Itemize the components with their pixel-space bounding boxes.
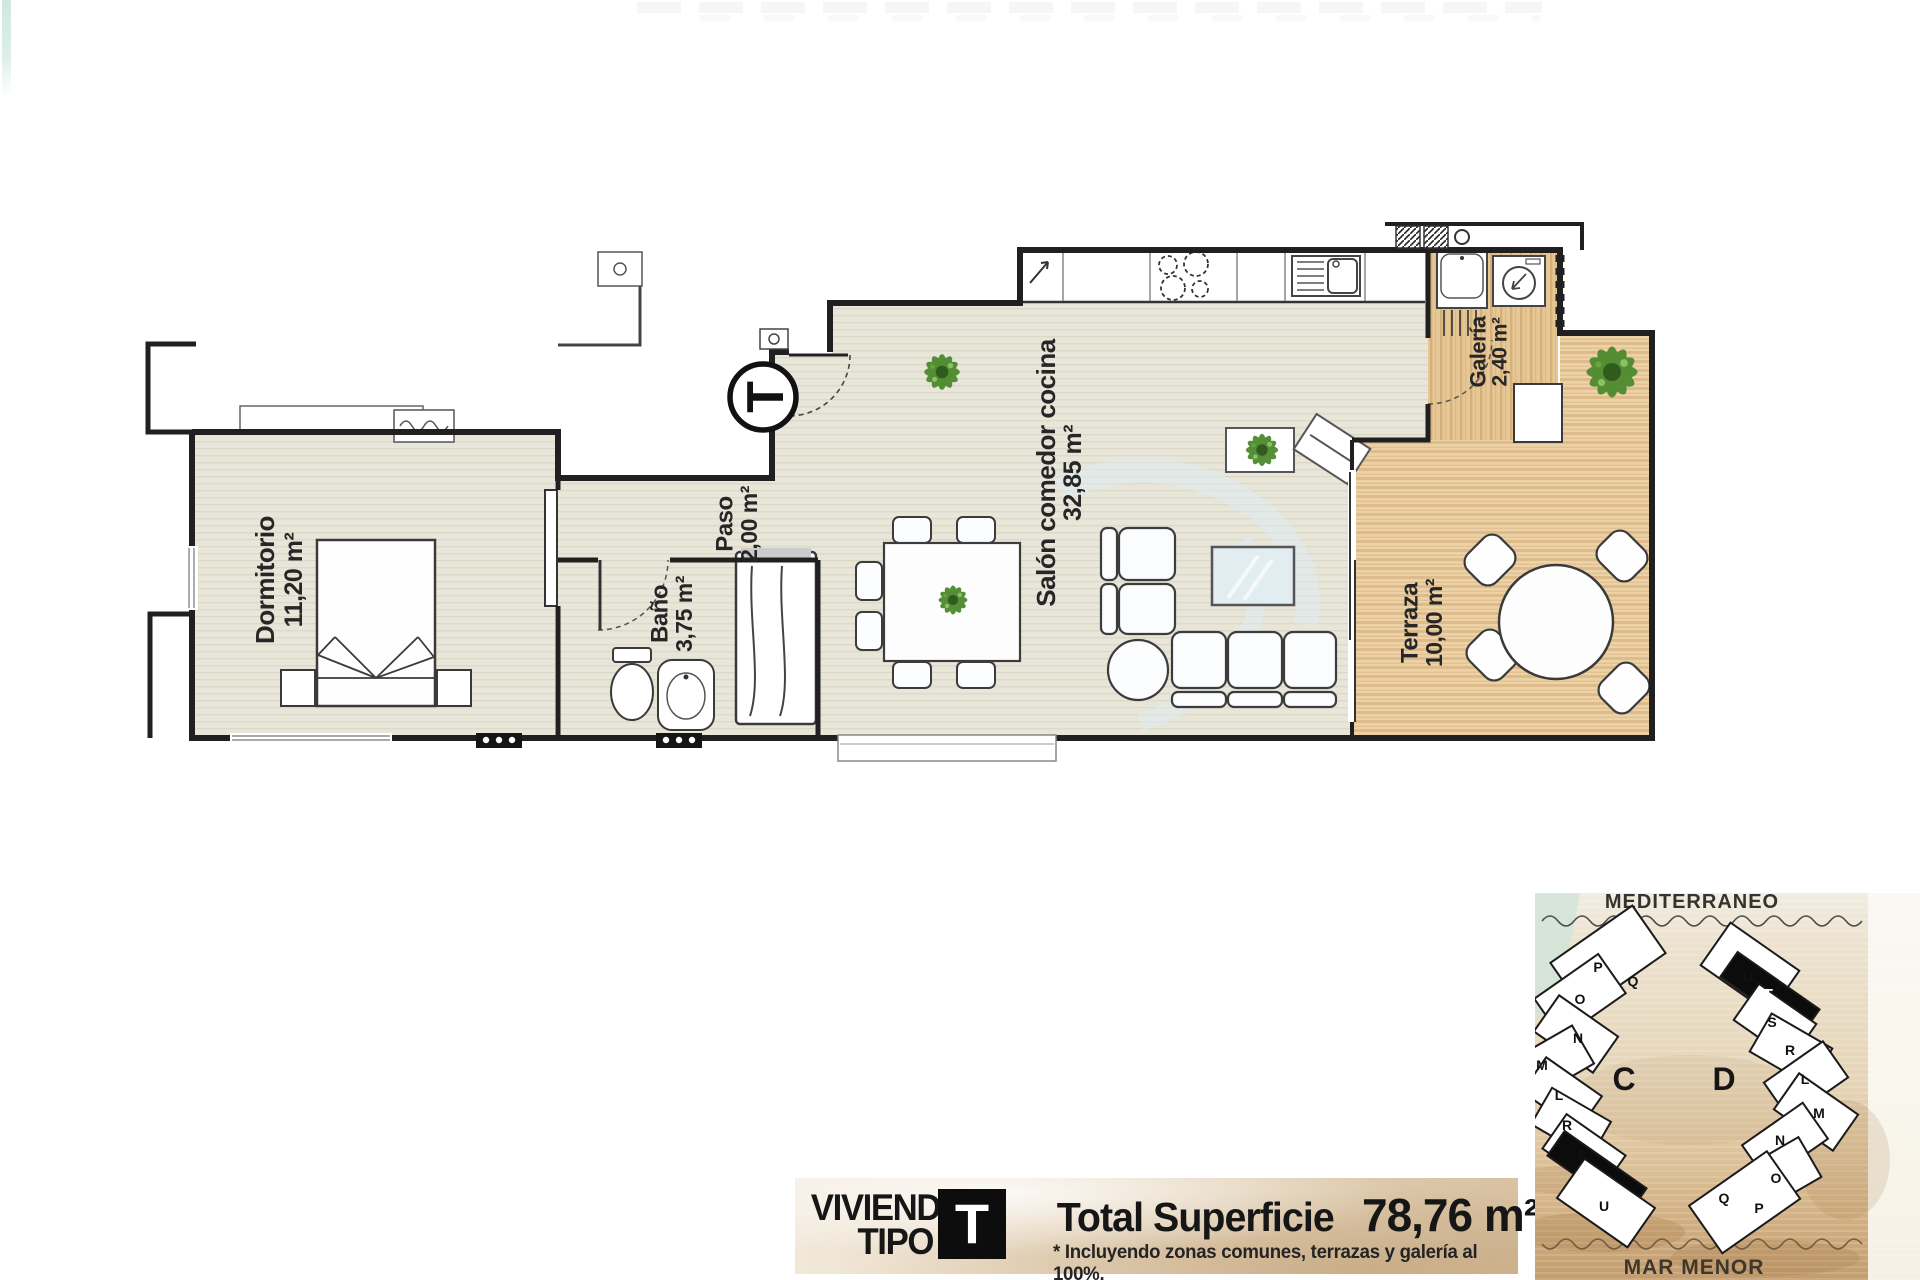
unit-letter: O xyxy=(1575,991,1586,1007)
type-letter-block: T xyxy=(938,1189,1006,1259)
unit-letter: R xyxy=(1785,1042,1795,1058)
summary-banner: VIVIENDA TIPO T Total Superficie 78,76 m… xyxy=(795,1178,1518,1274)
label-terraza: Terraza xyxy=(1397,582,1424,663)
sea-label-bottom: MAR MENOR xyxy=(1624,1256,1765,1279)
dining-chair xyxy=(957,662,995,688)
location-map: MEDITERRÁNEO P xyxy=(1535,893,1920,1280)
label-terraza-area: 10,00 m² xyxy=(1421,578,1447,667)
unit-letter: U xyxy=(1743,969,1753,985)
banner-title-line2: TIPO xyxy=(811,1225,933,1259)
unit-letter: L xyxy=(1555,1087,1564,1103)
sofa-seat xyxy=(1119,584,1175,634)
sofa-armrest xyxy=(1101,528,1117,580)
banner-title: VIVIENDA TIPO xyxy=(811,1191,933,1259)
sofa-seat xyxy=(1228,632,1282,688)
unit-letter: P xyxy=(1754,1200,1763,1216)
unit-letter: S xyxy=(1767,1014,1776,1030)
label-paso: Paso xyxy=(712,496,739,551)
side-table xyxy=(1108,640,1168,700)
unit-letter: Q xyxy=(1719,1190,1730,1206)
toilet-tank xyxy=(613,648,651,662)
unit-letter-highlighted: T xyxy=(1587,1171,1597,1188)
label-galeria-area: 2,40 m² xyxy=(1489,317,1512,386)
dining-chair xyxy=(957,517,995,543)
utility-box xyxy=(598,252,642,286)
kitchen-counter xyxy=(1020,250,1425,302)
floorplan-sheet: T Dormitorio 11,20 m² Paso 2,00 m² Baño … xyxy=(0,0,1920,1280)
sofa-front xyxy=(1284,692,1336,707)
label-bano-area: 3,75 m² xyxy=(671,575,697,652)
banner-footnote: * Incluyendo zonas comunes, terrazas y g… xyxy=(1053,1242,1509,1280)
unit-letter: M xyxy=(1536,1057,1548,1073)
dining-chair xyxy=(856,562,882,600)
stair-hatch xyxy=(1396,226,1420,248)
kitchen-sink xyxy=(1292,256,1360,296)
unit-letter: R xyxy=(1562,1117,1572,1133)
nightstand xyxy=(437,670,471,706)
sofa-front xyxy=(1228,692,1282,707)
dining-chair xyxy=(856,612,882,650)
label-dormitorio: Dormitorio xyxy=(250,516,280,644)
unit-letter: N xyxy=(1775,1132,1785,1148)
label-salon: Salón comedor cocina xyxy=(1031,338,1061,606)
salon-window-sill xyxy=(838,735,1056,761)
dining-chair xyxy=(893,662,931,688)
bedroom-door-leaf xyxy=(545,490,557,606)
terrace-storage xyxy=(1514,384,1562,442)
label-dormitorio-area: 11,20 m² xyxy=(280,532,308,627)
terrace-table xyxy=(1499,565,1613,679)
label-salon-area: 32,85 m² xyxy=(1059,425,1087,521)
sofa-armrest xyxy=(1101,584,1117,634)
banner-title-line1: VIVIENDA xyxy=(811,1191,933,1225)
unit-letter: M xyxy=(1813,1105,1825,1121)
total-surface-label: Total Superficie xyxy=(1057,1194,1334,1241)
dining-chair xyxy=(893,517,931,543)
block-d-label: D xyxy=(1712,1061,1735,1097)
label-paso-area: 2,00 m² xyxy=(736,485,762,562)
shower xyxy=(736,552,816,724)
total-surface-value: 78,76 m² xyxy=(1362,1189,1538,1241)
unit-letter: U xyxy=(1599,1198,1609,1214)
doorbell-panel xyxy=(760,329,788,349)
sofa-seat xyxy=(1119,528,1175,580)
total-surface: Total Superficie 78,76 m² xyxy=(1051,1188,1538,1242)
bedroom-window xyxy=(230,733,392,743)
type-letter: T xyxy=(955,1196,989,1252)
inset-right-fade xyxy=(1868,893,1920,1280)
bed xyxy=(317,540,435,706)
unit-letter: S xyxy=(1577,1147,1586,1163)
coffee-table xyxy=(1212,547,1294,605)
stair-hatch xyxy=(1424,226,1448,248)
block-c-label: C xyxy=(1612,1061,1635,1097)
toilet xyxy=(611,664,653,720)
laundry-tap xyxy=(1460,256,1464,260)
sofa-seat xyxy=(1172,632,1226,688)
unit-letter: Q xyxy=(1628,973,1639,989)
room-paso xyxy=(558,478,818,560)
unit-letter: L xyxy=(1801,1071,1810,1087)
bedroom-side-window xyxy=(186,546,198,610)
unit-letter: N xyxy=(1573,1030,1583,1046)
shoreline-wave-top xyxy=(1542,916,1862,926)
washing-machine-drum xyxy=(1503,267,1535,299)
label-bano: Baño xyxy=(647,585,674,643)
entry-type-letter: T xyxy=(737,381,795,413)
unit-letter-highlighted: T xyxy=(1763,987,1773,1004)
label-galeria: Galería xyxy=(1466,315,1491,387)
terrace-sliding-door xyxy=(1348,470,1356,722)
nightstand xyxy=(281,670,315,706)
sofa-seat xyxy=(1284,632,1336,688)
unit-letter: O xyxy=(1771,1170,1782,1186)
washbasin-tap xyxy=(684,675,689,680)
service-symbol xyxy=(1455,230,1469,244)
unit-letter: P xyxy=(1593,959,1602,975)
sofa-front xyxy=(1172,692,1226,707)
